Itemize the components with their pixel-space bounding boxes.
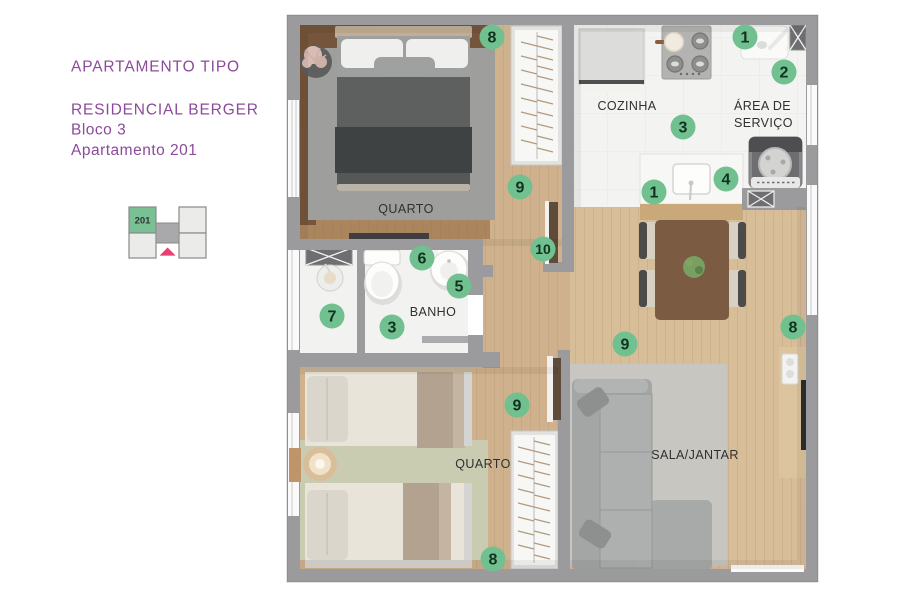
svg-text:2: 2: [780, 65, 789, 82]
svg-text:9: 9: [516, 180, 525, 197]
svg-text:4: 4: [722, 172, 731, 189]
svg-text:SALA/JANTAR: SALA/JANTAR: [651, 448, 739, 462]
svg-text:8: 8: [789, 320, 798, 337]
svg-text:QUARTO: QUARTO: [455, 457, 510, 471]
svg-text:1: 1: [650, 185, 659, 202]
svg-text:QUARTO: QUARTO: [378, 202, 433, 216]
svg-text:10: 10: [535, 241, 551, 257]
svg-text:SERVIÇO: SERVIÇO: [734, 116, 793, 130]
svg-text:8: 8: [488, 30, 497, 47]
svg-text:RESIDENCIAL BERGER: RESIDENCIAL BERGER: [71, 102, 259, 119]
svg-text:5: 5: [455, 279, 464, 296]
svg-text:1: 1: [741, 30, 750, 47]
svg-text:201: 201: [135, 216, 152, 227]
svg-text:8: 8: [489, 552, 498, 569]
svg-text:3: 3: [679, 120, 688, 137]
svg-text:Bloco 3: Bloco 3: [71, 122, 126, 139]
svg-text:BANHO: BANHO: [410, 305, 456, 319]
svg-text:APARTAMENTO TIPO: APARTAMENTO TIPO: [71, 59, 240, 76]
svg-text:6: 6: [418, 251, 427, 268]
svg-text:9: 9: [513, 398, 522, 415]
svg-text:3: 3: [388, 320, 397, 337]
svg-text:7: 7: [328, 309, 337, 326]
svg-text:COZINHA: COZINHA: [597, 99, 656, 113]
svg-text:ÁREA DE: ÁREA DE: [734, 98, 791, 113]
svg-text:Apartamento 201: Apartamento 201: [71, 142, 197, 159]
svg-text:9: 9: [621, 337, 630, 354]
